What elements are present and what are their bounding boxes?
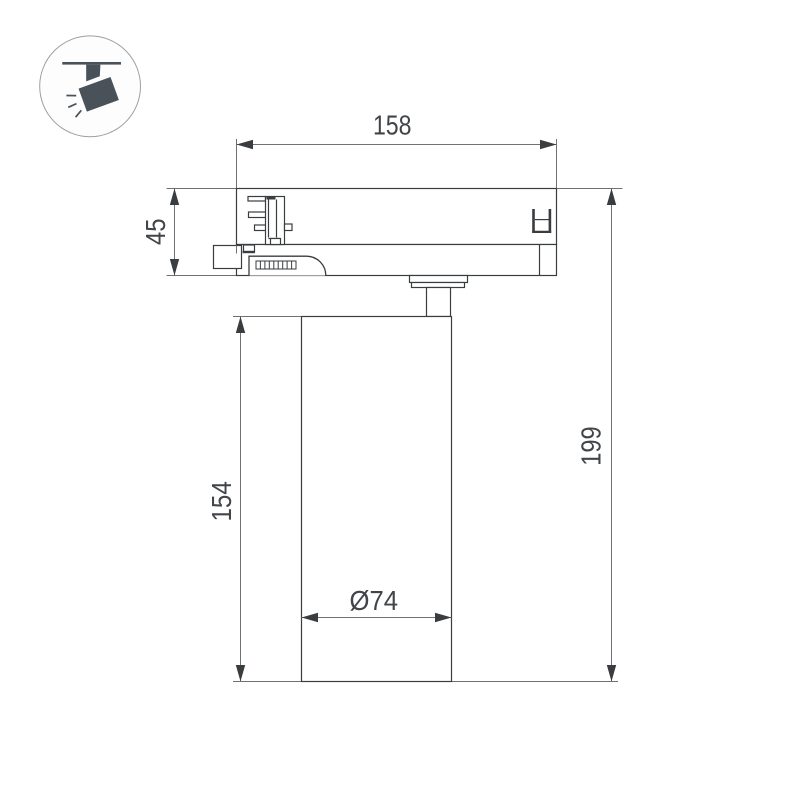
svg-text:154: 154 (206, 481, 237, 521)
svg-text:Ø74: Ø74 (350, 585, 399, 616)
svg-text:45: 45 (140, 219, 171, 246)
svg-text:158: 158 (373, 110, 412, 141)
svg-text:199: 199 (576, 426, 607, 465)
